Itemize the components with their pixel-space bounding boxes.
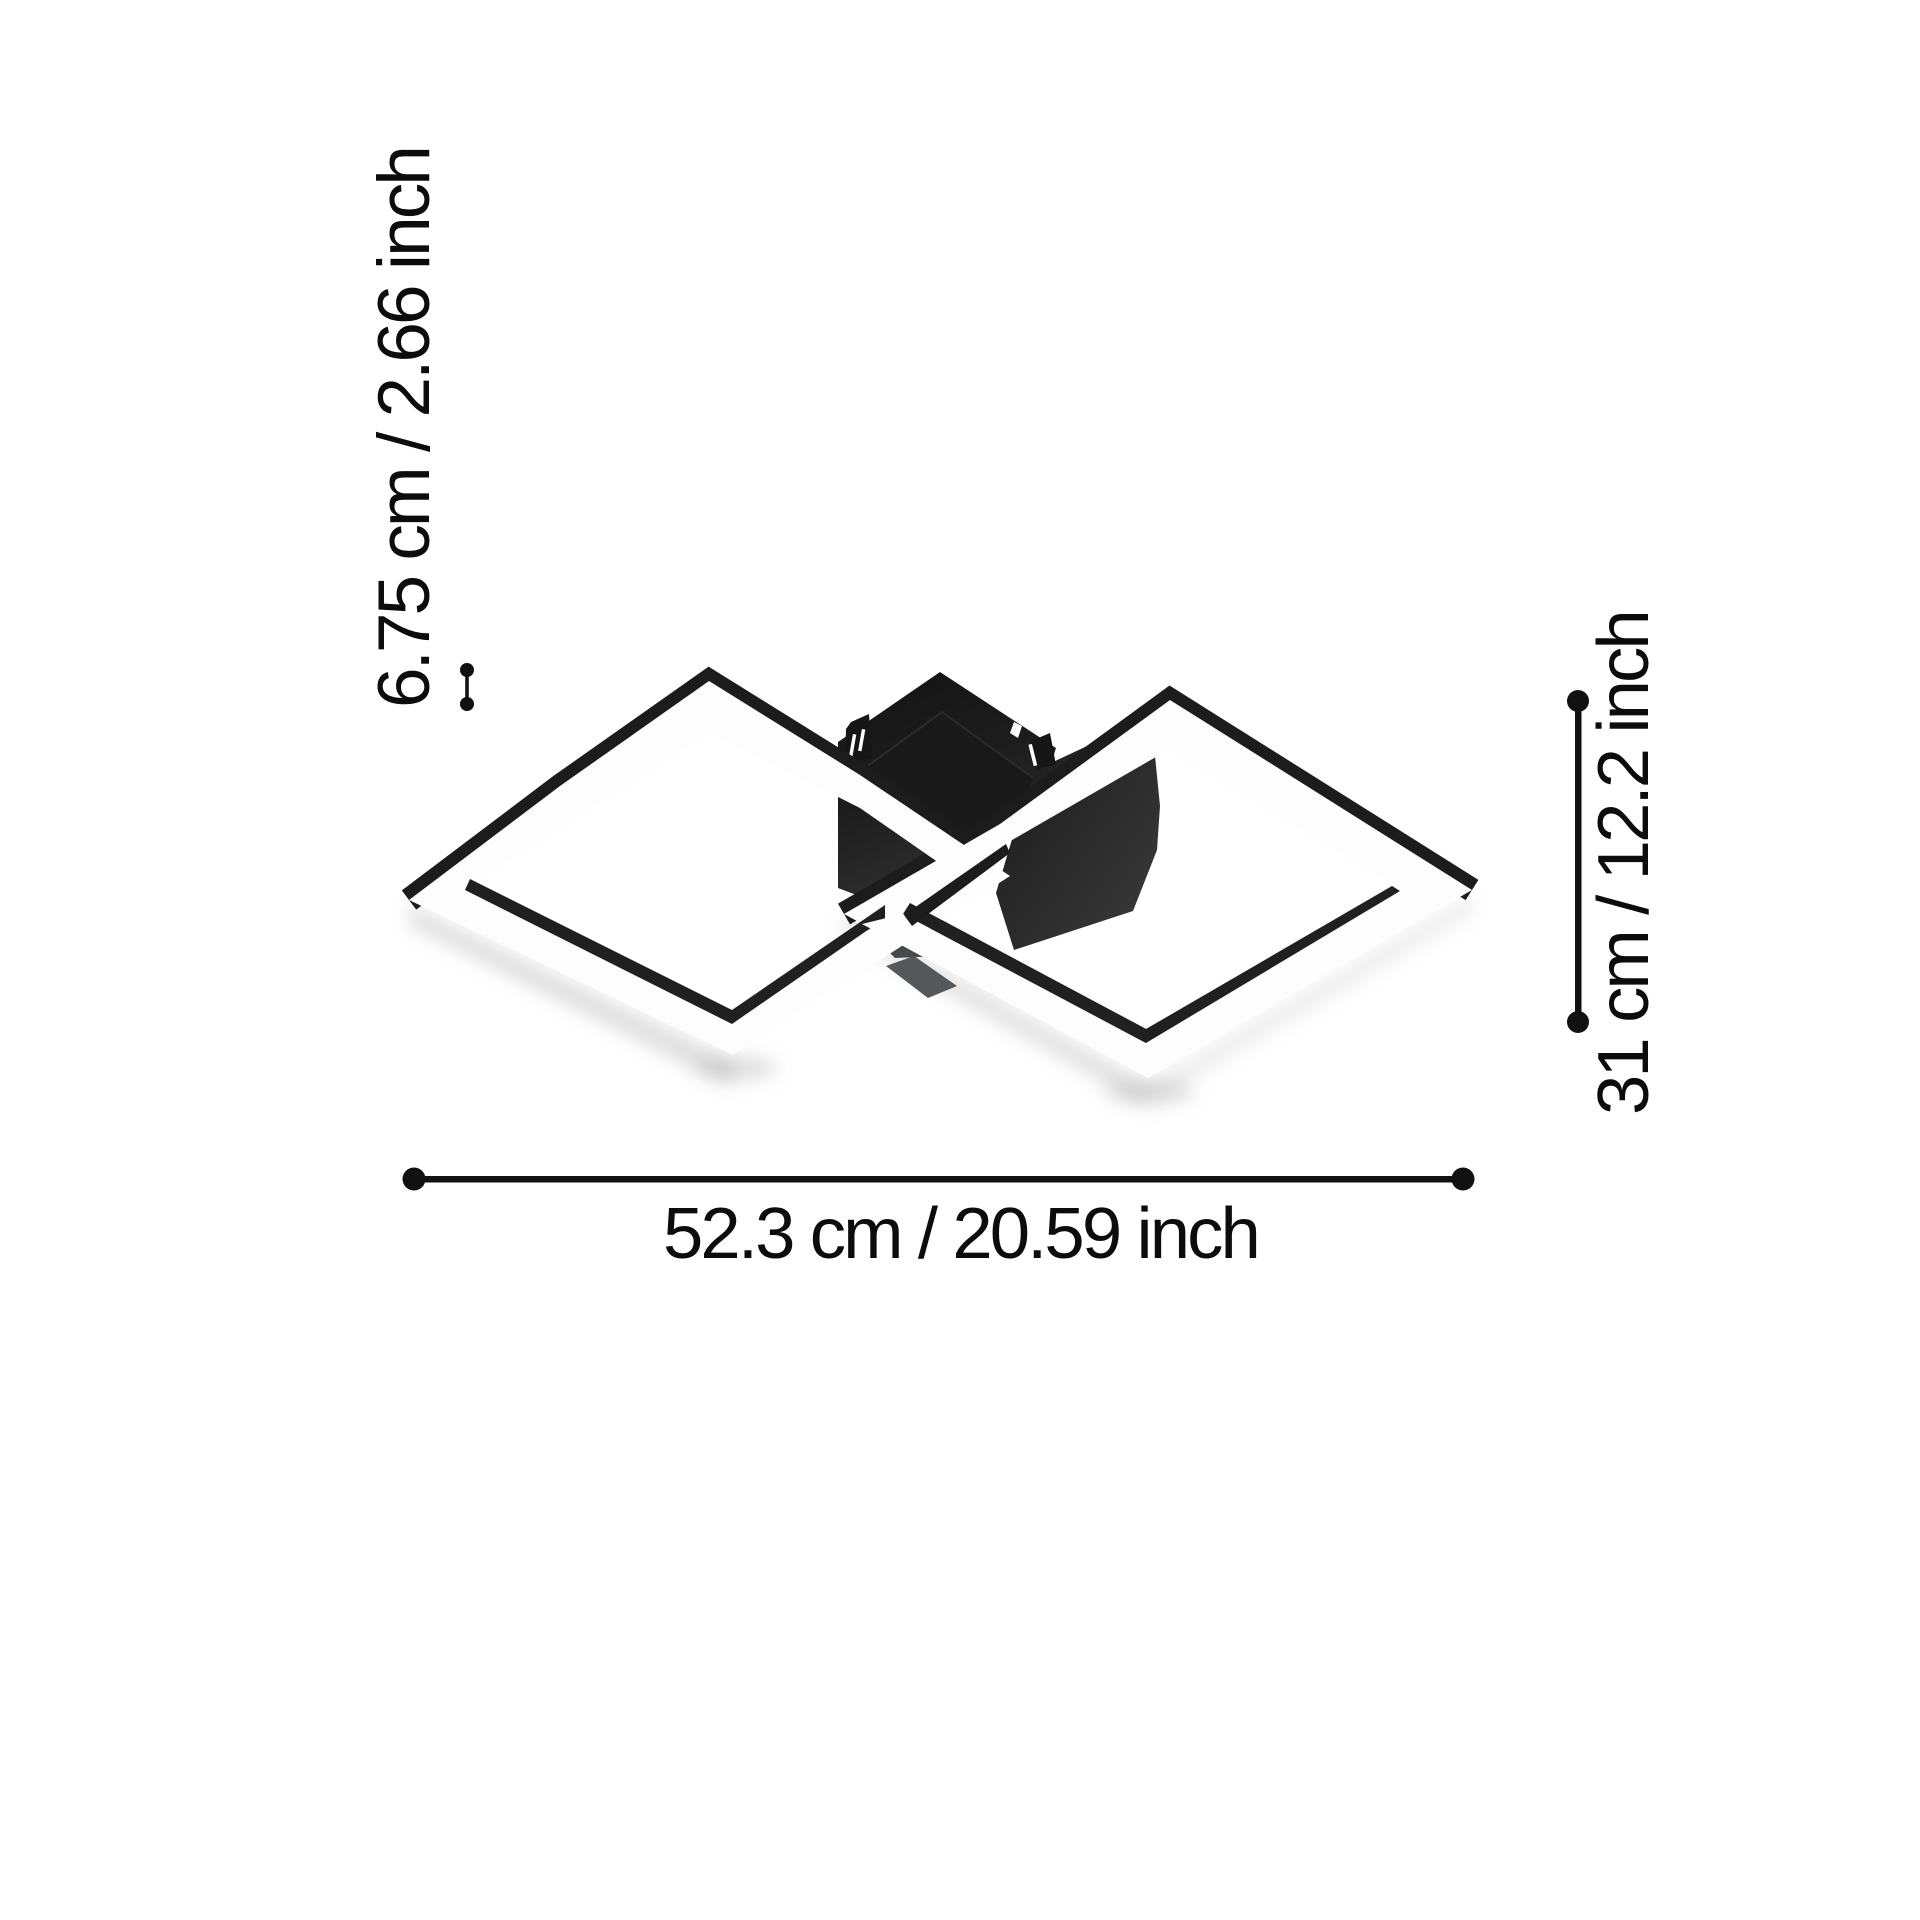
svg-text:6.75 cm / 2.66 inch: 6.75 cm / 2.66 inch bbox=[364, 148, 445, 708]
svg-text:31 cm / 12.2 inch: 31 cm / 12.2 inch bbox=[1583, 612, 1664, 1115]
svg-text:52.3 cm / 20.59 inch: 52.3 cm / 20.59 inch bbox=[663, 1193, 1258, 1274]
